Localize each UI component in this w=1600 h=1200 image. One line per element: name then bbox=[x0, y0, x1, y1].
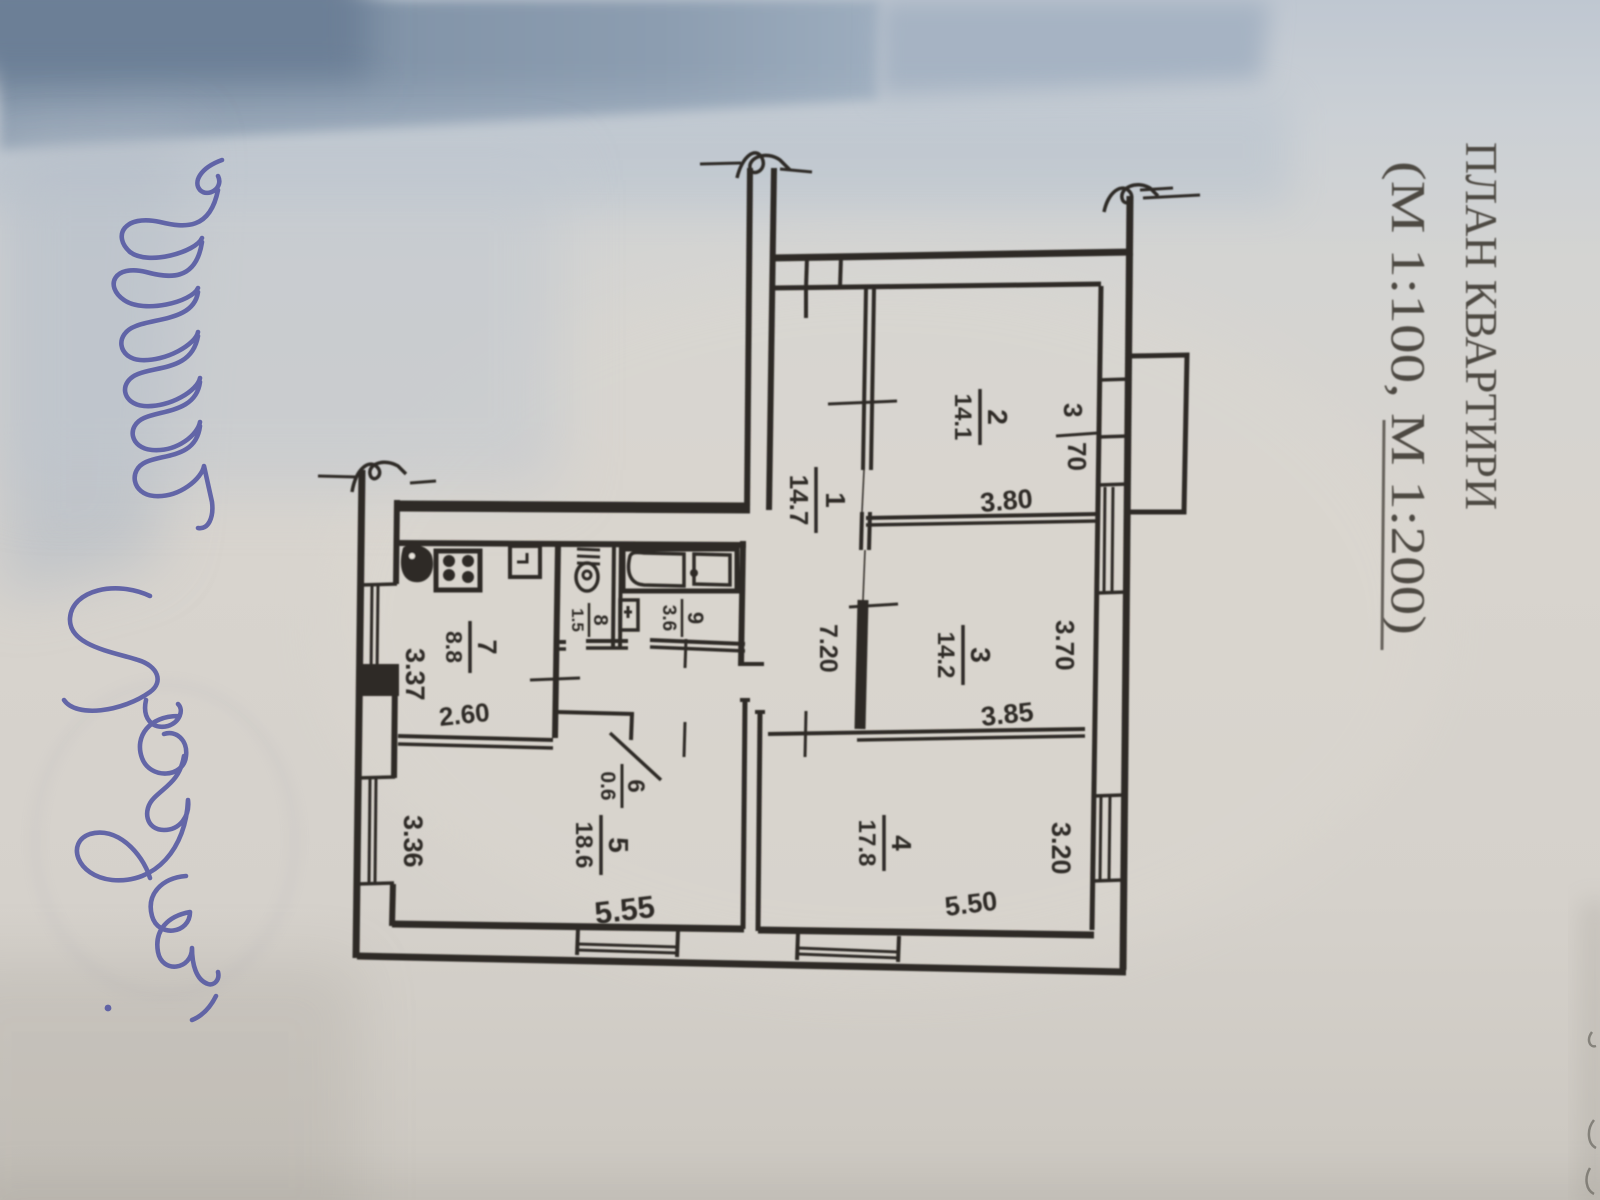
svg-text:4: 4 bbox=[886, 835, 917, 851]
svg-text:8: 8 bbox=[589, 614, 611, 625]
svg-text:7.20: 7.20 bbox=[814, 624, 842, 673]
svg-text:5.50: 5.50 bbox=[943, 886, 999, 922]
svg-text:1.5: 1.5 bbox=[568, 608, 587, 632]
svg-text:3.85: 3.85 bbox=[979, 697, 1034, 732]
svg-text:3.37: 3.37 bbox=[400, 648, 430, 701]
svg-text:0.6: 0.6 bbox=[596, 771, 619, 800]
svg-text:18.6: 18.6 bbox=[570, 822, 597, 869]
svg-text:70: 70 bbox=[1062, 442, 1092, 471]
svg-text:3.36: 3.36 bbox=[398, 815, 428, 868]
svg-text:6: 6 bbox=[622, 779, 649, 792]
svg-text:8.8: 8.8 bbox=[441, 631, 467, 663]
svg-text:14.1: 14.1 bbox=[949, 394, 976, 441]
svg-text:14.7: 14.7 bbox=[784, 475, 814, 526]
svg-text:3: 3 bbox=[965, 647, 996, 663]
svg-text:2.60: 2.60 bbox=[437, 697, 490, 732]
svg-text:17.8: 17.8 bbox=[853, 820, 880, 867]
svg-text:5.55: 5.55 bbox=[593, 889, 657, 931]
svg-text:14.2: 14.2 bbox=[932, 632, 959, 679]
svg-text:5: 5 bbox=[603, 837, 634, 853]
svg-text:3.70: 3.70 bbox=[1050, 620, 1080, 671]
svg-text:3.20: 3.20 bbox=[1046, 822, 1076, 875]
svg-text:(М 1:100, М 1:200): (М 1:100, М 1:200) bbox=[1381, 161, 1436, 635]
svg-text:ПЛАН КВАРТИРИ: ПЛАН КВАРТИРИ bbox=[1456, 142, 1507, 510]
svg-text:2: 2 bbox=[982, 409, 1013, 425]
svg-text:7: 7 bbox=[472, 639, 502, 654]
svg-text:3.80: 3.80 bbox=[979, 484, 1034, 518]
svg-text:3: 3 bbox=[1058, 403, 1088, 417]
svg-text:1: 1 bbox=[820, 492, 851, 508]
svg-text:9: 9 bbox=[683, 612, 708, 624]
svg-text:3.6: 3.6 bbox=[658, 605, 679, 631]
